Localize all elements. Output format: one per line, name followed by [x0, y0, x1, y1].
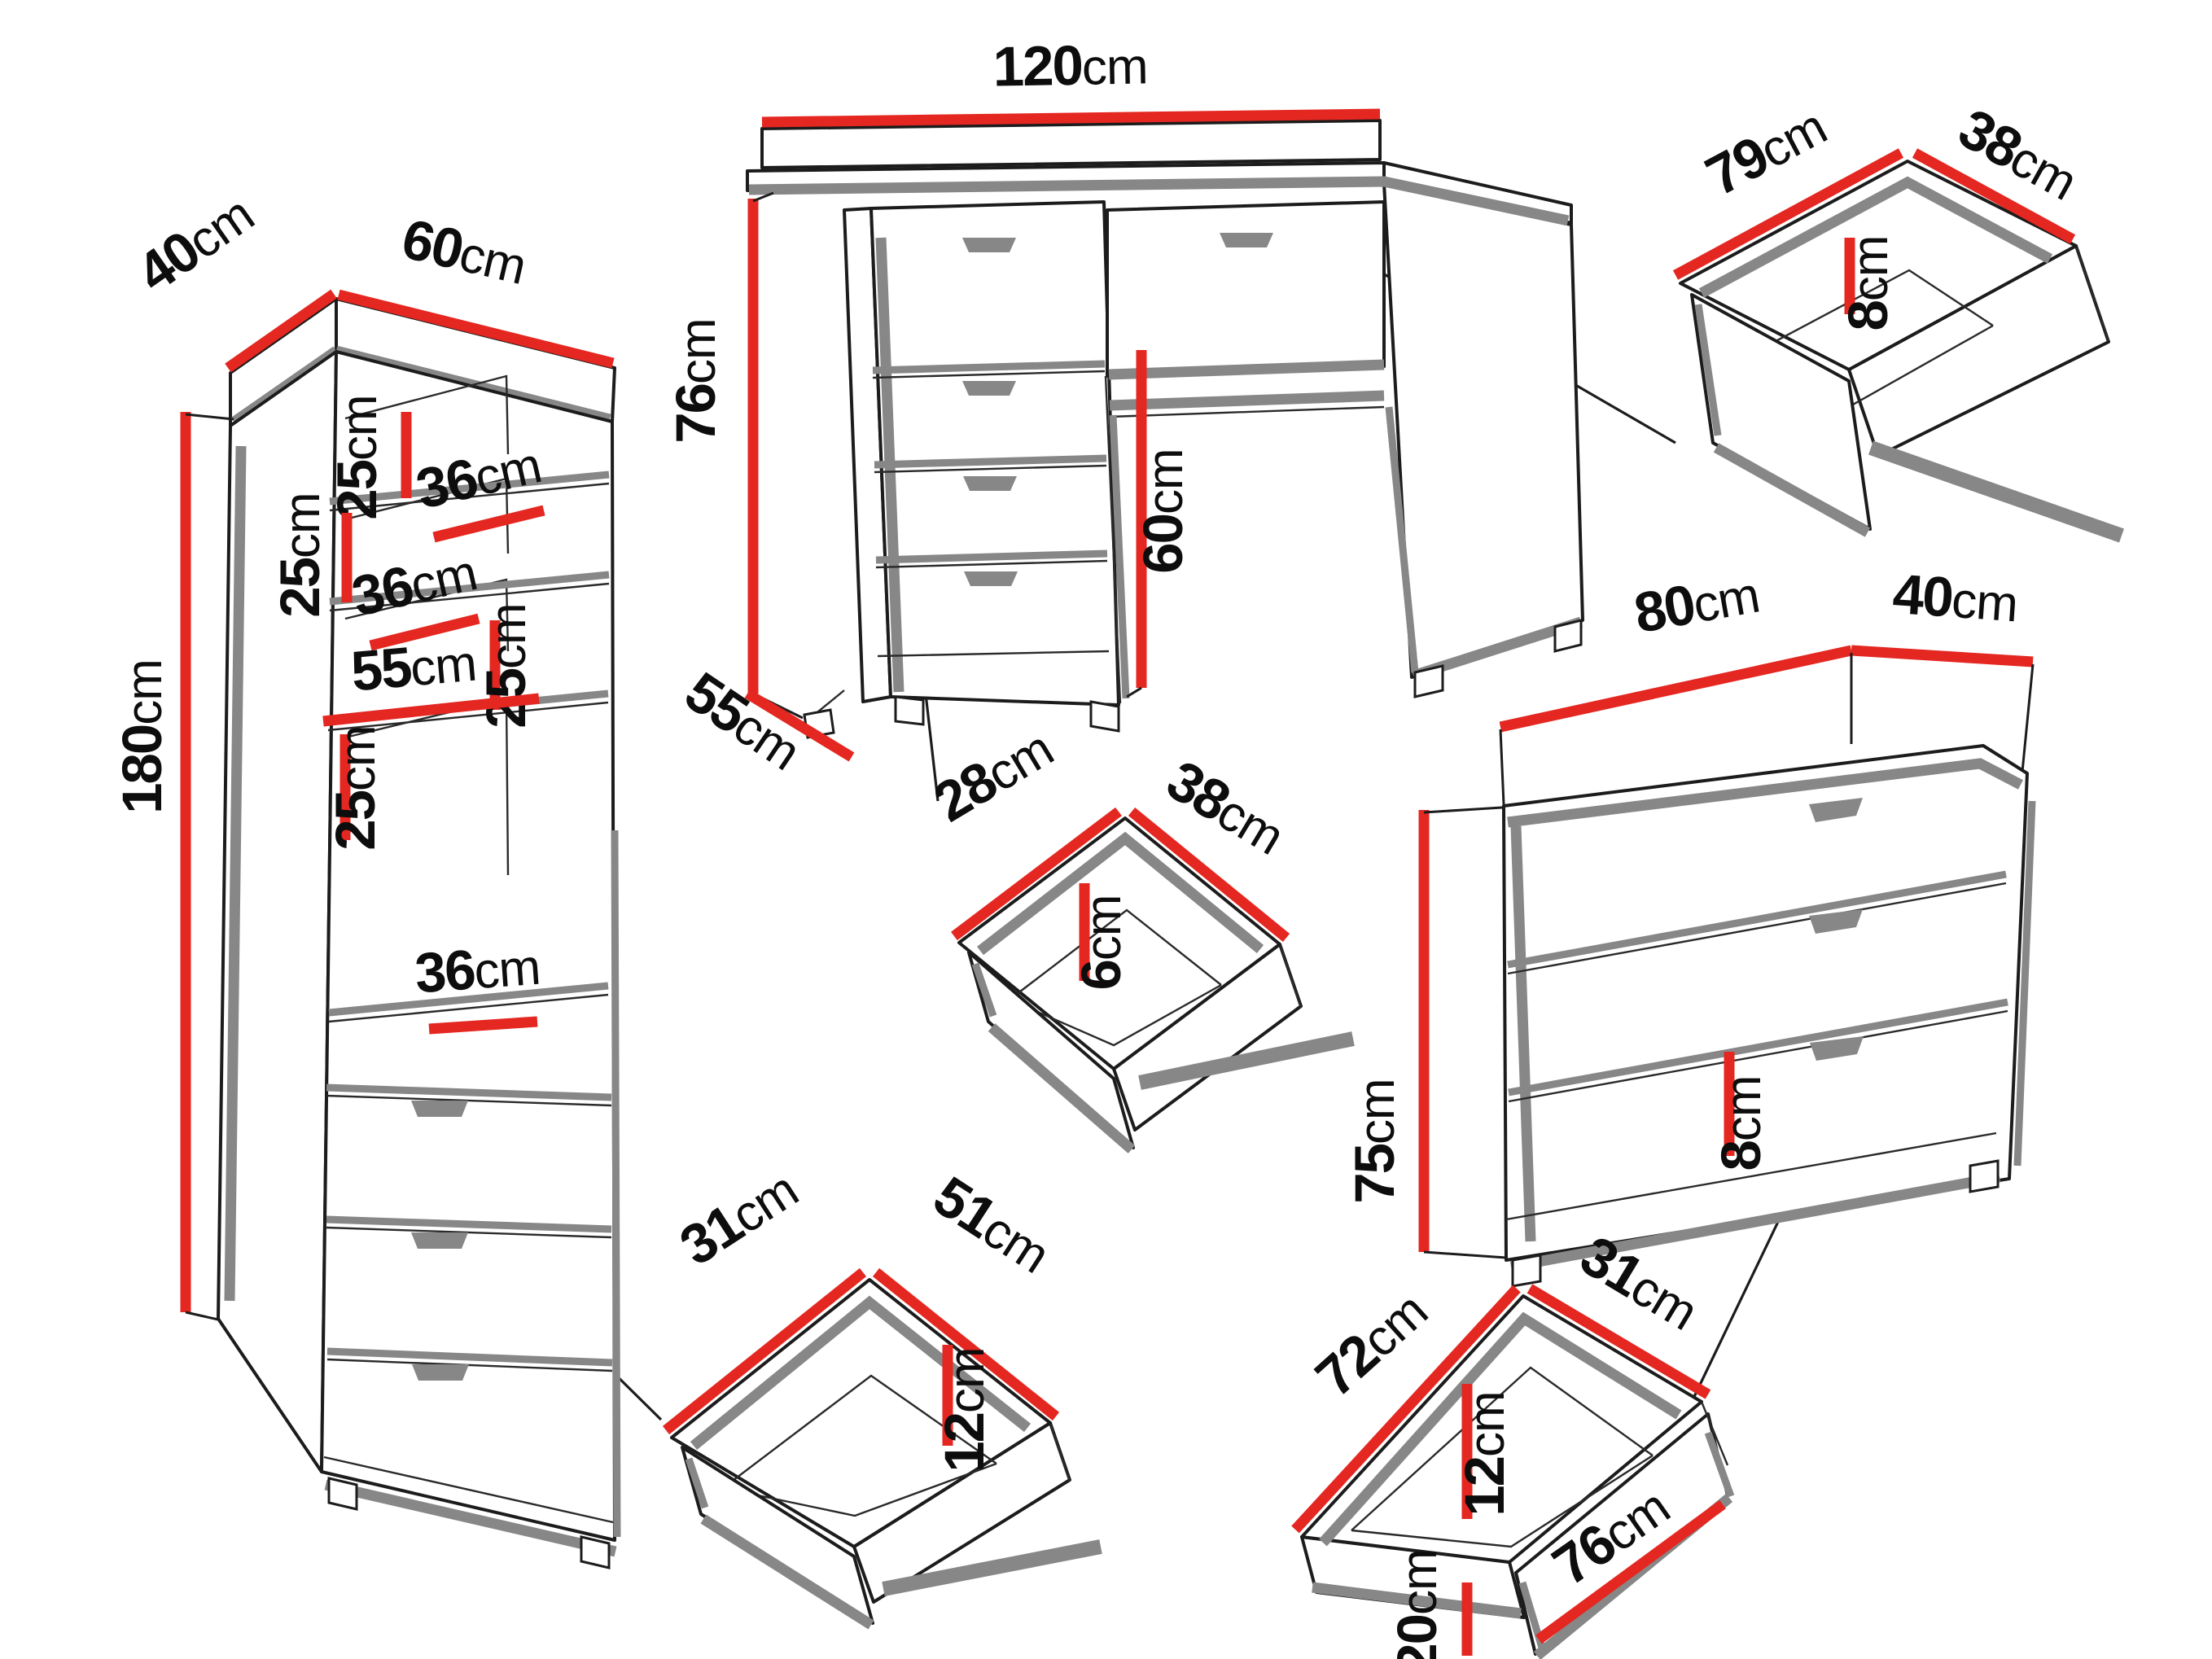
- small-drawer-height-label: 6cm: [1070, 895, 1132, 990]
- wardrobe-drawer-width-label: 51cm: [923, 1164, 1062, 1285]
- desk-drawer-width-label: 79cm: [1696, 94, 1836, 208]
- desk-foot: [1555, 620, 1581, 651]
- chest-foot-right: [1970, 1161, 1998, 1192]
- chest-depth-dimline: [1851, 650, 2033, 662]
- wardrobe-compartment-3-label: 25cm: [475, 603, 537, 728]
- wardrobe-compartment-2-label: 25cm: [269, 492, 331, 617]
- chest-plinth-label: 8cm: [1710, 1075, 1772, 1171]
- drawer-handle: [962, 381, 1016, 396]
- desk-width-label: 120cm: [992, 33, 1148, 98]
- wardrobe-shelf-4-depth-dimline: [429, 1022, 537, 1029]
- desk-rail-shadow: [1110, 396, 1384, 405]
- wardrobe-compartment-1-label: 25cm: [326, 395, 388, 519]
- wardrobe-shelf-4-depth-label: 36cm: [413, 934, 541, 1005]
- drawer-handle: [962, 238, 1016, 252]
- wardrobe-width-label: 60cm: [396, 207, 532, 296]
- wardrobe-drawer-height-label: 12cm: [933, 1347, 996, 1472]
- drawer-handle: [964, 571, 1018, 586]
- drawer-handle: [412, 1364, 469, 1381]
- desk-foot: [896, 697, 923, 724]
- desk-upstand: [762, 120, 1380, 168]
- drawer-handle: [1220, 233, 1273, 247]
- wardrobe-shelf-width-label: 55cm: [348, 630, 479, 703]
- desk-drawer-right-shadow: [1871, 448, 2122, 536]
- drawer-handle: [411, 1101, 468, 1117]
- chest-foot-left: [1513, 1255, 1540, 1286]
- desk-knee-label: 60cm: [1132, 449, 1194, 573]
- chest-height-label: 75cm: [1343, 1079, 1406, 1203]
- wardrobe-right-shadow: [615, 830, 617, 1537]
- chest-width-dimline: [1500, 650, 1851, 727]
- desk-foot: [1415, 666, 1443, 697]
- desk-foot: [1091, 702, 1119, 731]
- wardrobe-compartment-4-label: 25cm: [324, 725, 387, 850]
- wardrobe-diagram: 40cm 60cm 180cm 25cm 36cm 25cm 36cm 25cm…: [111, 182, 617, 1568]
- desk-drawer-diagram: 79cm 38cm 8cm: [1675, 94, 2122, 536]
- wardrobe-drawer-depth-label: 31cm: [669, 1157, 808, 1277]
- furniture-dimensions-diagram: 40cm 60cm 180cm 25cm 36cm 25cm 36cm 25cm…: [0, 0, 2212, 1659]
- chest-drawer-diagram: 72cm 31cm 12cm 20cm 76cm: [1295, 1223, 1731, 1659]
- wardrobe-drawer-diagram: 31cm 51cm 12cm: [666, 1157, 1101, 1625]
- desk-drawer-height-label: 8cm: [1837, 235, 1899, 330]
- chest-drawer-inner-height-label: 12cm: [1453, 1391, 1516, 1516]
- wardrobe-depth-label: 40cm: [126, 182, 265, 304]
- drawer-handle: [411, 1232, 468, 1249]
- drawer-handle: [963, 476, 1017, 491]
- wardrobe-height-label: 180cm: [111, 659, 173, 814]
- chest-depth-label: 40cm: [1890, 562, 2019, 634]
- desk-right-panel: [1384, 184, 1583, 677]
- wardrobe-foot-left: [329, 1478, 357, 1509]
- desk-drawer-column: [871, 202, 1119, 705]
- desk-height-label: 76cm: [664, 318, 727, 443]
- chest-width-label: 80cm: [1630, 562, 1763, 645]
- desk-diagram: 120cm 76cm 55cm 60cm: [664, 33, 1583, 781]
- chest-drawer-front-height-label: 20cm: [1386, 1549, 1448, 1659]
- diagram-canvas: 40cm 60cm 180cm 25cm 36cm 25cm 36cm 25cm…: [0, 0, 2212, 1659]
- wardrobe-foot-right: [581, 1537, 609, 1568]
- desk-wide-drawer: [1107, 202, 1384, 376]
- small-drawer-diagram: 28cm 38cm 6cm: [923, 716, 1353, 1149]
- small-drawer-depth-label: 28cm: [923, 716, 1062, 834]
